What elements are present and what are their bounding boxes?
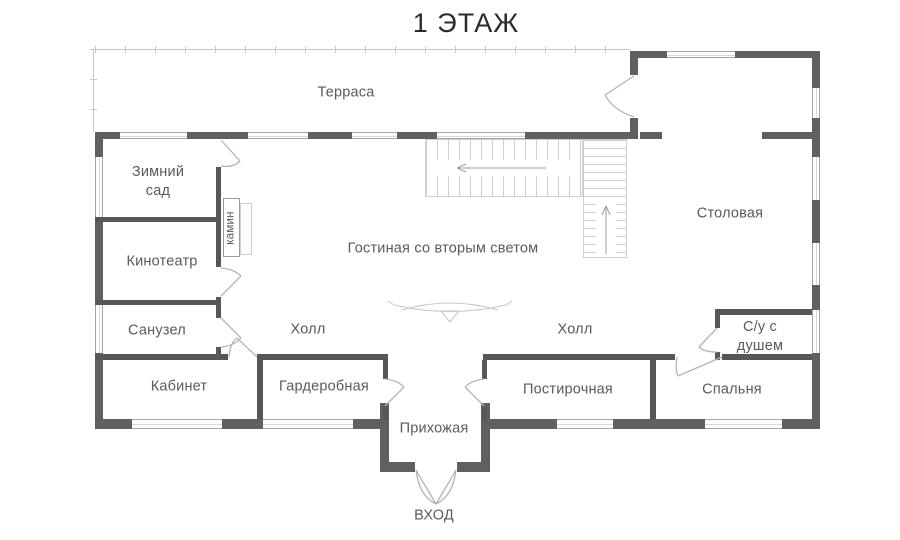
stair-flight-horizontal (425, 139, 583, 197)
interior-wall (257, 354, 263, 420)
terrace-posts-left (90, 49, 97, 132)
wall-segment (782, 419, 820, 429)
room-label-entry-hall: Прихожая (400, 420, 469, 439)
wall-segment (630, 118, 638, 139)
door-swing-shower-bathroom (699, 328, 717, 352)
wall-segment (812, 200, 820, 243)
interior-wall (383, 360, 388, 379)
wall-segment (812, 51, 820, 88)
wall-segment (95, 419, 132, 429)
wall-segment (308, 132, 352, 139)
room-label-living-room: Гостиная со вторым светом (348, 240, 539, 259)
window-segment (667, 51, 735, 58)
fireplace-hearth (240, 203, 252, 255)
room-label-cinema: Кинотеатр (126, 253, 197, 272)
wall-stub (640, 132, 662, 139)
door-swing-cinema (221, 268, 241, 296)
window-segment (437, 132, 525, 139)
window-segment (248, 132, 308, 139)
room-label-entrance: ВХОД (414, 507, 454, 526)
chandelier-decoration (388, 301, 512, 322)
interior-wall (483, 354, 675, 360)
window-segment (812, 88, 820, 118)
interior-wall (715, 309, 812, 315)
interior-wall (482, 406, 487, 420)
wall-segment (812, 118, 820, 157)
wall-stub (762, 132, 812, 139)
porch-wall (380, 462, 415, 472)
room-label-bedroom: Спальня (702, 381, 762, 400)
interior-wall (216, 167, 221, 267)
interior-wall (95, 354, 228, 360)
window-segment (352, 132, 397, 139)
wall-segment (95, 132, 103, 157)
window-segment (120, 132, 187, 139)
terrace-posts-top (95, 46, 631, 53)
stair-flight-vertical (583, 139, 627, 258)
room-label-bathroom: Санузел (128, 322, 186, 341)
window-segment (705, 419, 782, 429)
interior-wall (95, 300, 221, 305)
entrance-door-swing (416, 470, 456, 504)
room-label-shower-bathroom: С/у с душем (737, 318, 783, 356)
wall-segment (95, 218, 103, 300)
window-segment (95, 305, 103, 353)
wall-segment (490, 419, 557, 429)
room-label-terrace: Терраса (317, 84, 374, 103)
interior-wall (383, 406, 388, 420)
door-swing-office (229, 338, 257, 357)
door-swing-laundry (465, 379, 484, 406)
room-label-office: Кабинет (151, 378, 208, 397)
wall-segment (397, 132, 437, 139)
porch-wall (457, 462, 490, 472)
wall-segment (222, 419, 263, 429)
floor-plan: 1 ЭТАЖ (0, 0, 900, 540)
room-label-wardrobe: Гардеробная (279, 378, 369, 397)
interior-wall (715, 352, 720, 360)
wall-segment (187, 132, 248, 139)
window-segment (812, 243, 820, 285)
room-label-hall-left: Холл (291, 321, 326, 340)
window-segment (95, 157, 103, 218)
window-segment (557, 419, 613, 429)
interior-wall (715, 315, 720, 328)
wall-segment (812, 353, 820, 429)
room-label-fireplace: камин (222, 211, 241, 244)
room-label-hall-right: Холл (558, 321, 593, 340)
window-segment (812, 157, 820, 200)
wall-segment (630, 51, 638, 75)
door-swing-bathroom (221, 318, 241, 347)
interior-wall (650, 360, 656, 420)
wall-segment (95, 353, 103, 429)
wall-segment (735, 51, 820, 58)
door-swing-dining-terrace (605, 76, 634, 117)
room-label-laundry: Постирочная (523, 381, 613, 400)
door-swing-winter-garden (221, 140, 240, 166)
wall-segment (812, 285, 820, 310)
window-segment (263, 419, 353, 429)
window-segment (812, 310, 820, 353)
window-segment (132, 419, 222, 429)
interior-wall (263, 354, 388, 360)
room-label-dining-room: Столовая (697, 205, 763, 224)
room-label-winter-garden: Зимний сад (132, 163, 184, 201)
wall-segment (525, 132, 631, 139)
door-swing-wardrobe (385, 379, 404, 406)
page-title: 1 ЭТАЖ (413, 8, 519, 39)
interior-wall (482, 360, 487, 379)
wall-segment (613, 419, 705, 429)
interior-wall (95, 217, 221, 222)
